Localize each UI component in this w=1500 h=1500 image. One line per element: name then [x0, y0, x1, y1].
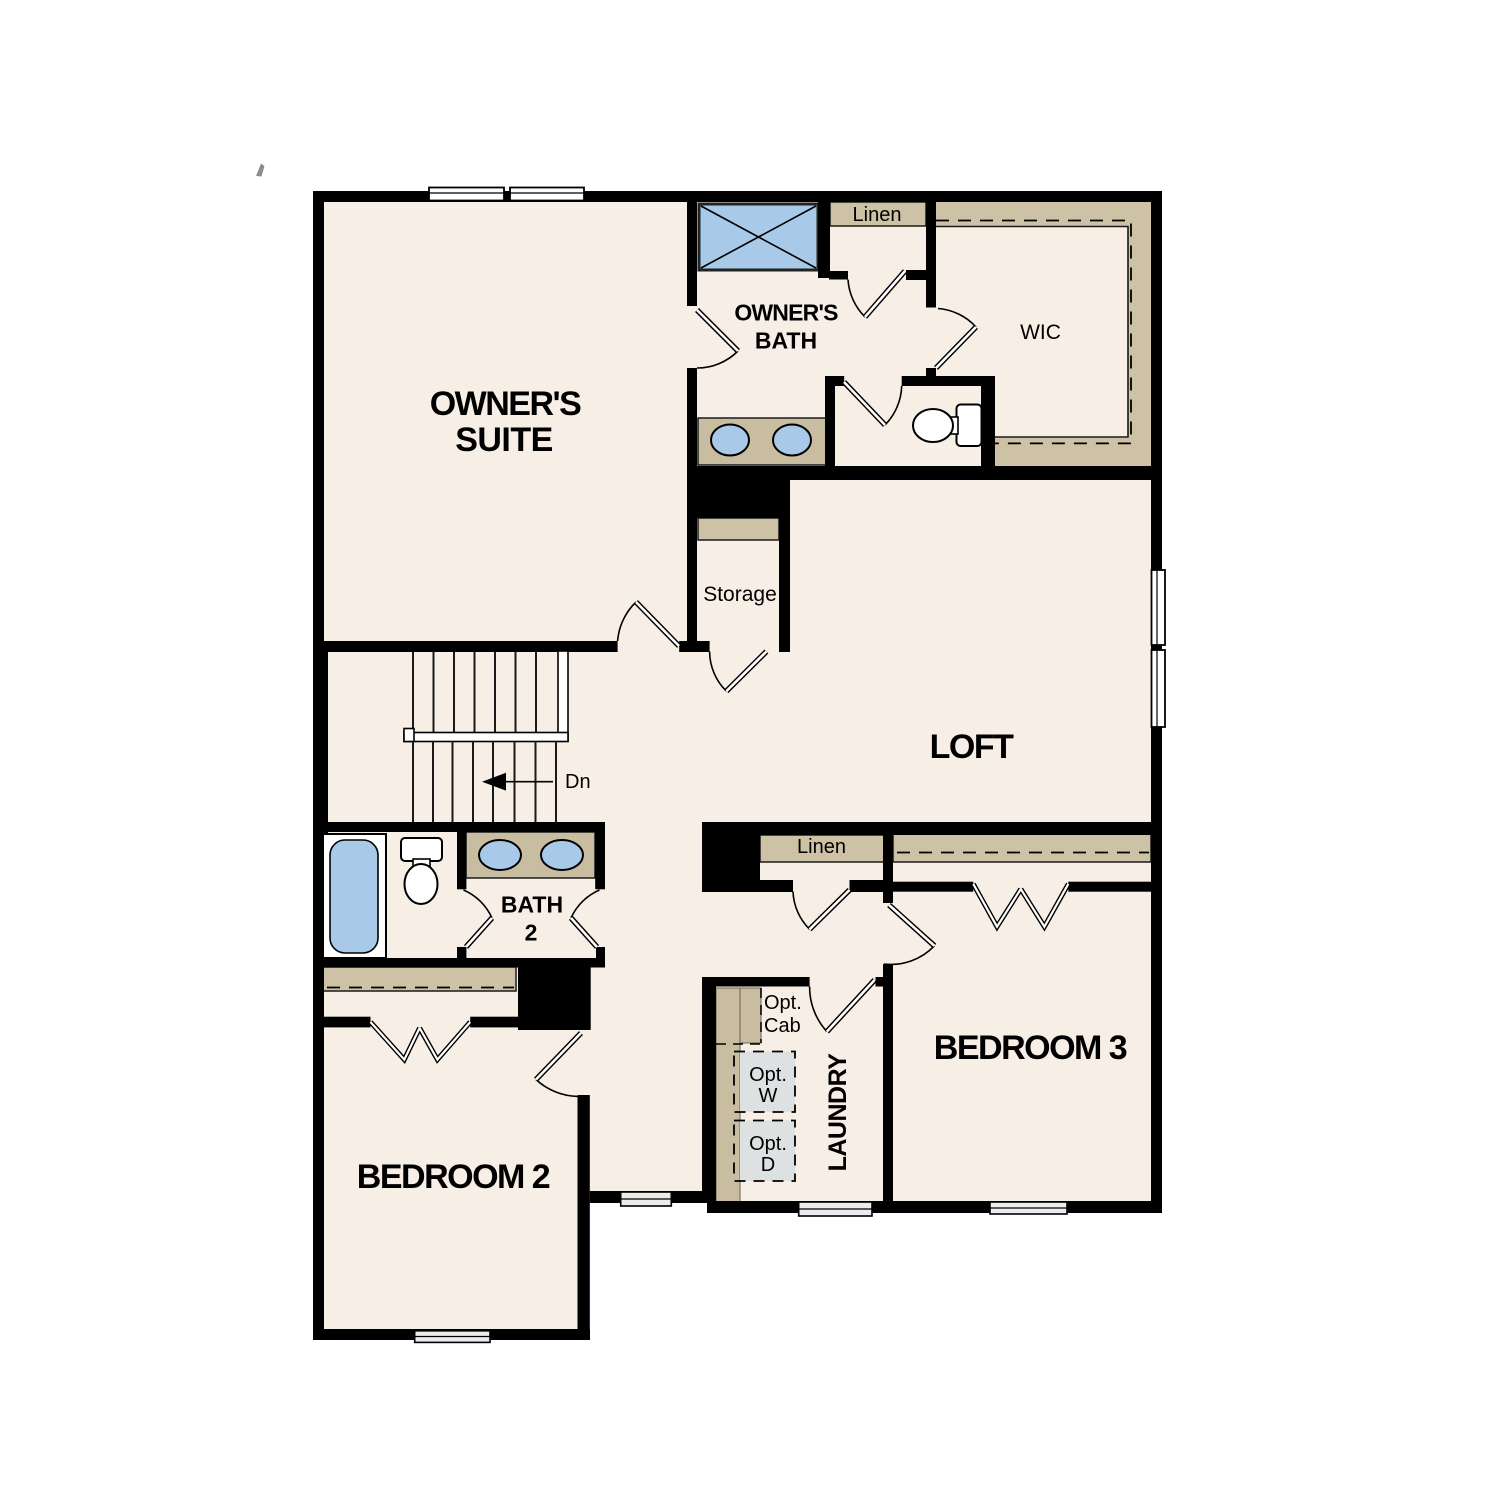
svg-text:SUITE: SUITE — [455, 421, 553, 459]
svg-text:BATH: BATH — [501, 892, 563, 918]
svg-text:Opt.: Opt. — [764, 992, 802, 1014]
svg-text:Linen: Linen — [797, 836, 846, 858]
svg-text:OWNER'S: OWNER'S — [430, 385, 581, 423]
svg-text:Cab: Cab — [764, 1015, 801, 1037]
svg-text:Storage: Storage — [703, 583, 777, 606]
svg-text:Opt.: Opt. — [749, 1064, 787, 1086]
svg-text:LOFT: LOFT — [930, 728, 1014, 766]
svg-text:BEDROOM 3: BEDROOM 3 — [934, 1029, 1127, 1067]
svg-text:W: W — [759, 1085, 778, 1107]
svg-text:LAUNDRY: LAUNDRY — [824, 1053, 852, 1172]
svg-text:BEDROOM 2: BEDROOM 2 — [357, 1158, 550, 1196]
svg-text:BATH: BATH — [755, 328, 817, 354]
svg-text:2: 2 — [525, 920, 538, 946]
svg-text:Opt.: Opt. — [749, 1133, 787, 1155]
svg-text:OWNER'S: OWNER'S — [734, 300, 838, 326]
svg-text:D: D — [761, 1154, 775, 1176]
svg-text:Linen: Linen — [853, 204, 902, 226]
svg-text:Dn: Dn — [565, 771, 591, 793]
svg-text:WIC: WIC — [1020, 321, 1061, 344]
